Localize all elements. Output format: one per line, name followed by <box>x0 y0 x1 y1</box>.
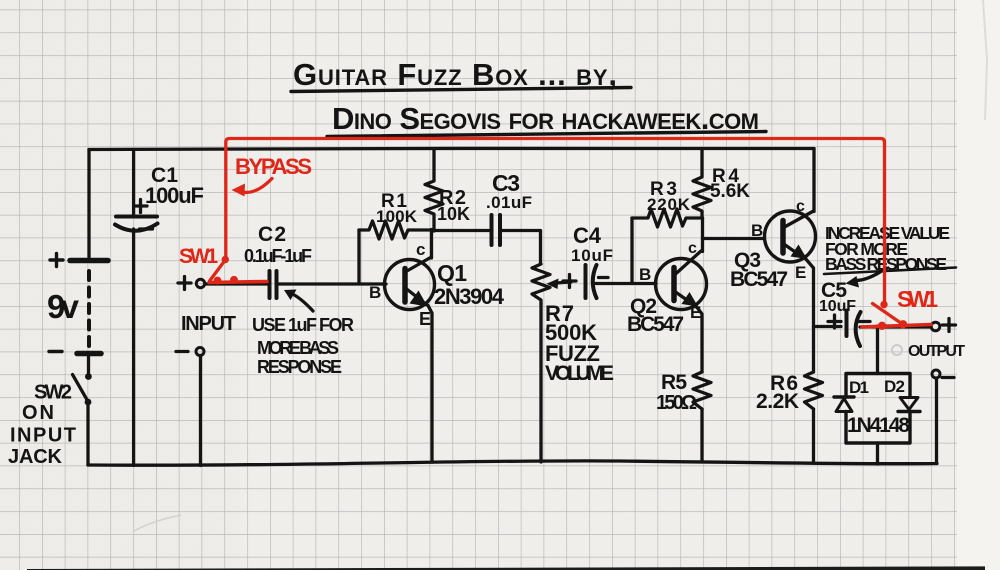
svg-text:INPUT: INPUT <box>10 425 76 447</box>
svg-text:BC547: BC547 <box>730 268 788 291</box>
svg-text:B: B <box>369 283 381 302</box>
svg-text:B: B <box>751 221 763 240</box>
svg-text:B: B <box>639 265 651 284</box>
svg-text:2.2K: 2.2K <box>756 390 799 413</box>
svg-text:D1: D1 <box>849 378 869 397</box>
svg-text:USE 1uF FOR: USE 1uF FOR <box>252 315 354 335</box>
svg-text:5.6K: 5.6K <box>710 181 750 202</box>
svg-text:2N3904: 2N3904 <box>434 284 505 309</box>
svg-text:MORE BASS: MORE BASS <box>257 338 339 358</box>
svg-text:D2: D2 <box>884 377 905 396</box>
svg-text:9v: 9v <box>47 288 80 325</box>
svg-text:C4: C4 <box>573 223 602 248</box>
svg-text:JACK: JACK <box>8 446 63 468</box>
svg-text:R5: R5 <box>661 371 687 394</box>
svg-text:1N4148: 1N4148 <box>847 414 910 437</box>
svg-text:100K: 100K <box>376 207 418 226</box>
svg-text:100uF: 100uF <box>145 183 204 208</box>
svg-text:SW2: SW2 <box>34 382 72 404</box>
svg-text:.01uF: .01uF <box>486 193 532 212</box>
svg-text:SW1: SW1 <box>179 245 218 268</box>
svg-text:BC547: BC547 <box>627 313 684 336</box>
svg-text:BYPASS: BYPASS <box>235 154 312 179</box>
svg-text:10uF: 10uF <box>571 246 613 265</box>
svg-text:OUTPUT: OUTPUT <box>908 343 965 360</box>
svg-text:220K: 220K <box>647 195 691 214</box>
svg-text:0.1uF-1uF: 0.1uF-1uF <box>244 246 312 266</box>
svg-text:VOLUME: VOLUME <box>545 362 614 385</box>
svg-text:c: c <box>688 240 697 257</box>
svg-text:c: c <box>416 240 425 259</box>
svg-text:C2: C2 <box>258 223 286 246</box>
svg-text:c: c <box>796 198 805 215</box>
svg-text:RESPONSE: RESPONSE <box>257 357 342 377</box>
svg-text:SW1: SW1 <box>897 286 938 312</box>
svg-text:INPUT: INPUT <box>181 313 236 335</box>
svg-text:E: E <box>690 303 701 322</box>
svg-text:10K: 10K <box>437 204 470 224</box>
svg-text:10uF: 10uF <box>819 298 856 315</box>
svg-text:E: E <box>419 309 431 329</box>
svg-text:150Ω: 150Ω <box>656 392 697 414</box>
svg-text:E: E <box>795 263 806 282</box>
svg-text:Q1: Q1 <box>437 260 467 286</box>
